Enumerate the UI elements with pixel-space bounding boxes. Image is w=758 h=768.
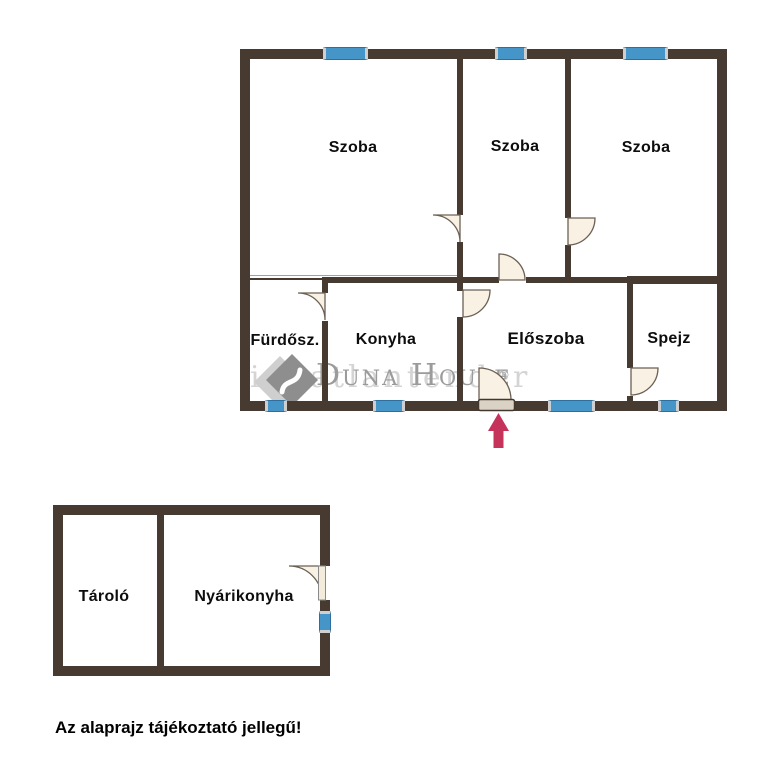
window-nyarikonyha bbox=[319, 611, 331, 633]
room-label-nyarikonyha: Nyárikonyha bbox=[194, 588, 293, 606]
room-label-konyha: Konyha bbox=[356, 331, 416, 349]
wall-eloszoba-top-left bbox=[463, 277, 499, 283]
wall-konyha-top bbox=[322, 277, 463, 283]
room-label-tarolo: Tároló bbox=[79, 588, 130, 606]
window-spejz bbox=[658, 400, 679, 412]
wall-furdoszoba-top bbox=[250, 278, 322, 280]
window-szoba2 bbox=[495, 47, 527, 60]
wall-out-left bbox=[53, 505, 63, 676]
window-konyha bbox=[373, 400, 405, 412]
door-konyha-eloszoba-icon bbox=[463, 290, 490, 317]
window-szoba3 bbox=[623, 47, 668, 60]
wall-main-right bbox=[717, 49, 727, 411]
nyarikonyha-door-leaf bbox=[319, 566, 326, 600]
window-furdoszoba bbox=[265, 400, 287, 412]
wall-out-bottom bbox=[53, 666, 330, 676]
disclaimer-text: Az alaprajz tájékoztató jellegű! bbox=[55, 718, 302, 738]
wall-tarolo-nyarikonyha bbox=[157, 515, 164, 666]
door-furdoszoba-icon bbox=[298, 293, 325, 320]
wall-eloszoba-top-right bbox=[526, 277, 627, 283]
wall-main-bottom bbox=[240, 401, 727, 411]
wall-szoba1-szoba2-upper bbox=[457, 59, 463, 215]
window-szoba1 bbox=[323, 47, 368, 60]
wall-szoba2-szoba3-upper bbox=[565, 59, 571, 218]
wall-eloszoba-spejz-upper bbox=[627, 283, 633, 368]
room-label-szoba-1: Szoba bbox=[329, 139, 378, 157]
room-label-furdoszoba: Fürdősz. bbox=[250, 332, 319, 350]
window-eloszoba bbox=[548, 400, 595, 412]
door-nyarikonyha-icon bbox=[289, 566, 322, 599]
floor-plan: ingatlantender Duna House ® bbox=[0, 0, 758, 768]
registered-trademark-icon: ® bbox=[498, 368, 510, 382]
door-szoba2-icon bbox=[499, 254, 525, 280]
entrance-arrow-icon bbox=[488, 413, 509, 448]
room-label-spejz: Spejz bbox=[647, 330, 690, 348]
wall-out-top bbox=[53, 505, 330, 515]
wall-konyha-eloszoba-upper bbox=[457, 283, 463, 291]
wall-out-right-upper bbox=[320, 505, 330, 566]
room-label-szoba-2: Szoba bbox=[491, 138, 540, 156]
wall-eloszoba-spejz-lower bbox=[627, 396, 633, 401]
wall-furdoszoba-konyha-upper bbox=[322, 277, 328, 293]
watermark-brand-text: Duna House bbox=[316, 358, 512, 393]
door-szoba1-icon bbox=[433, 215, 460, 242]
wall-divider-thin-line bbox=[250, 275, 463, 276]
door-szoba3-icon bbox=[568, 218, 595, 245]
wall-konyha-eloszoba-lower bbox=[457, 317, 463, 401]
wall-out-right-lower bbox=[320, 600, 330, 666]
wall-furdoszoba-konyha-lower bbox=[322, 321, 328, 401]
wall-main-left bbox=[240, 49, 250, 411]
door-spejz-icon bbox=[631, 368, 658, 395]
room-label-eloszoba: Előszoba bbox=[507, 329, 584, 349]
wall-spejz-top bbox=[627, 276, 717, 284]
room-label-szoba-3: Szoba bbox=[622, 139, 671, 157]
